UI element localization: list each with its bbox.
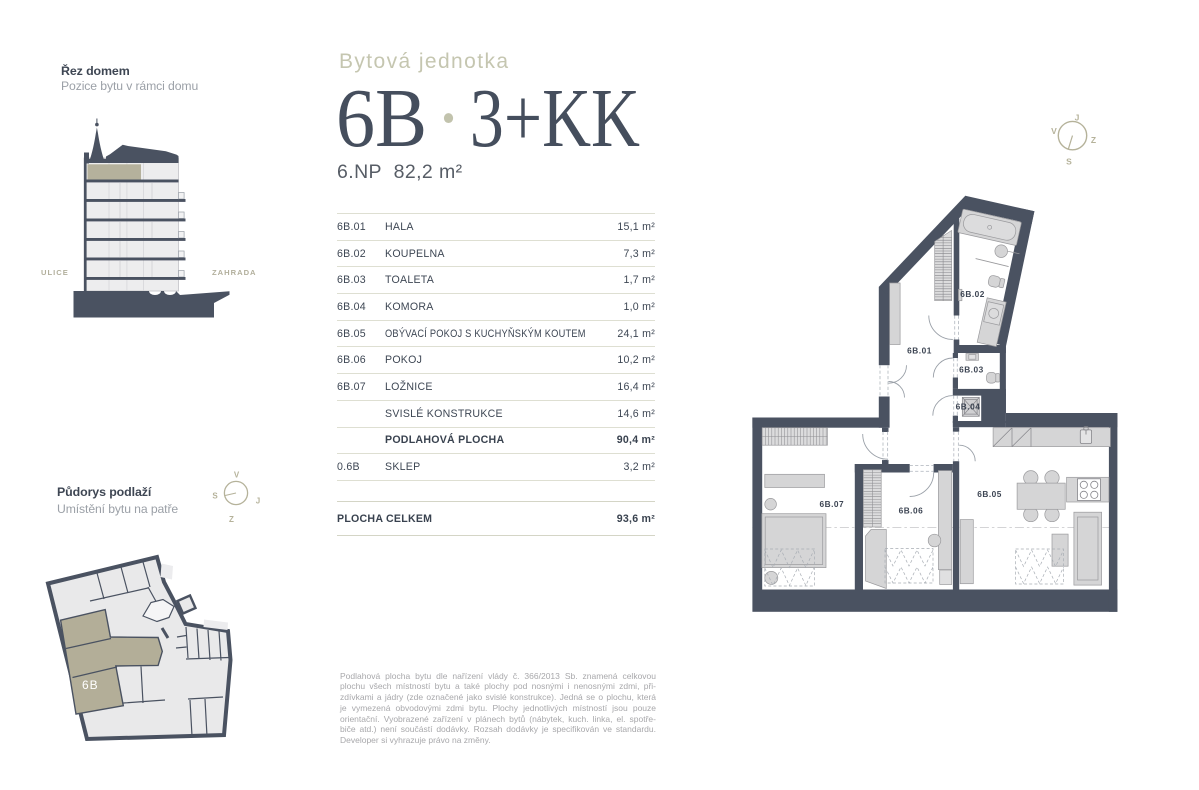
svg-text:S: S (212, 492, 218, 501)
svg-text:6B.03: 6B.03 (959, 364, 984, 374)
svg-text:6B: 6B (82, 678, 99, 692)
svg-text:6B.07: 6B.07 (819, 499, 844, 509)
svg-text:V: V (234, 471, 240, 480)
svg-text:Z: Z (229, 515, 234, 524)
svg-text:6B.01: 6B.01 (907, 346, 932, 356)
svg-text:V: V (1051, 126, 1057, 136)
svg-text:J: J (1075, 113, 1080, 123)
svg-text:J: J (256, 497, 260, 506)
svg-text:6B.06: 6B.06 (899, 505, 924, 515)
svg-text:6B.04: 6B.04 (956, 401, 981, 411)
svg-text:6B.05: 6B.05 (977, 489, 1002, 499)
svg-text:Z: Z (1091, 135, 1096, 145)
svg-text:6B.02: 6B.02 (960, 289, 985, 299)
svg-text:S: S (1066, 157, 1072, 167)
